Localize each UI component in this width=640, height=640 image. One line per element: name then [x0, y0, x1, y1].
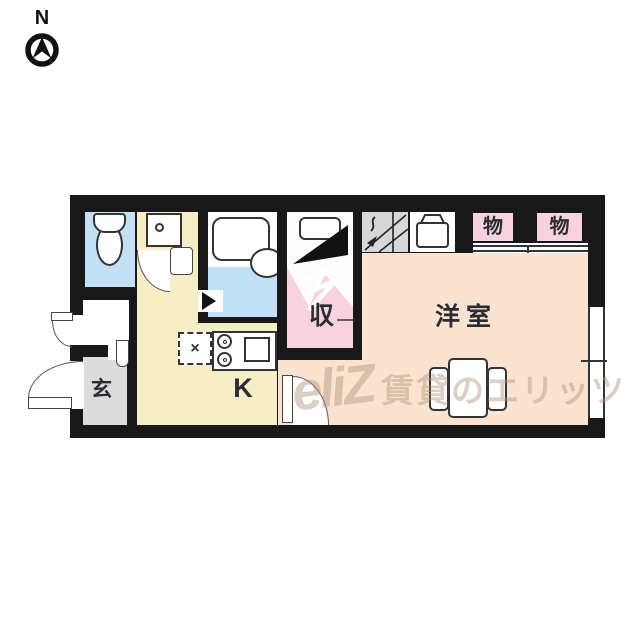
- burner-center: [223, 358, 227, 362]
- entrance-label: 玄: [91, 379, 112, 400]
- meter-box-niche: [83, 300, 129, 345]
- compass-north-label: N: [22, 8, 62, 28]
- floor-plan: 収 物 物: [70, 195, 605, 438]
- closet-room: 収: [287, 212, 353, 348]
- closet-label: 収: [309, 304, 334, 329]
- compass: N: [22, 8, 62, 75]
- track-line: [473, 245, 588, 247]
- service-door-leaf: [51, 312, 73, 321]
- toilet-room: [85, 212, 135, 287]
- folding-door-triangle: [202, 292, 216, 310]
- hall-door-leaf: [170, 247, 193, 275]
- refrigerator-slot-icon: ×: [178, 332, 212, 365]
- stairs-icon: [362, 212, 408, 252]
- chair-icon: [487, 367, 507, 411]
- bath-folding-door-icon: [198, 290, 223, 312]
- entrance-genkan: 玄: [83, 357, 127, 425]
- bath-basin-icon: [250, 248, 277, 278]
- sink-icon: [244, 337, 270, 362]
- washbasin-icon: [146, 213, 182, 247]
- storage-closet-1: 物: [473, 213, 513, 241]
- room-door-leaf: [282, 375, 293, 423]
- storage-closet-2: 物: [537, 213, 582, 241]
- genkan-door-leaf: [116, 340, 129, 367]
- entrance-door-leaf: [28, 397, 72, 409]
- north-compass-icon: [22, 28, 62, 70]
- chair-icon: [429, 367, 449, 411]
- kitchen-counter: [212, 331, 277, 371]
- dimension-tick: [581, 360, 607, 362]
- door-swing-arc: [52, 321, 72, 347]
- table-icon: [448, 358, 488, 418]
- toilet-tank: [93, 213, 126, 233]
- western-room-label: 洋室: [426, 303, 506, 331]
- washing-machine-icon: [410, 212, 455, 252]
- door-swing-arc: [28, 361, 83, 398]
- stove-burners-icon: [217, 352, 232, 367]
- burner-center: [223, 340, 227, 344]
- track-line: [473, 250, 588, 252]
- floor-plan-page: N: [0, 0, 640, 640]
- window: [588, 307, 605, 418]
- washbasin-faucet: [155, 223, 164, 232]
- stove-burners-icon: [217, 334, 232, 349]
- kitchen-label: K: [225, 373, 261, 403]
